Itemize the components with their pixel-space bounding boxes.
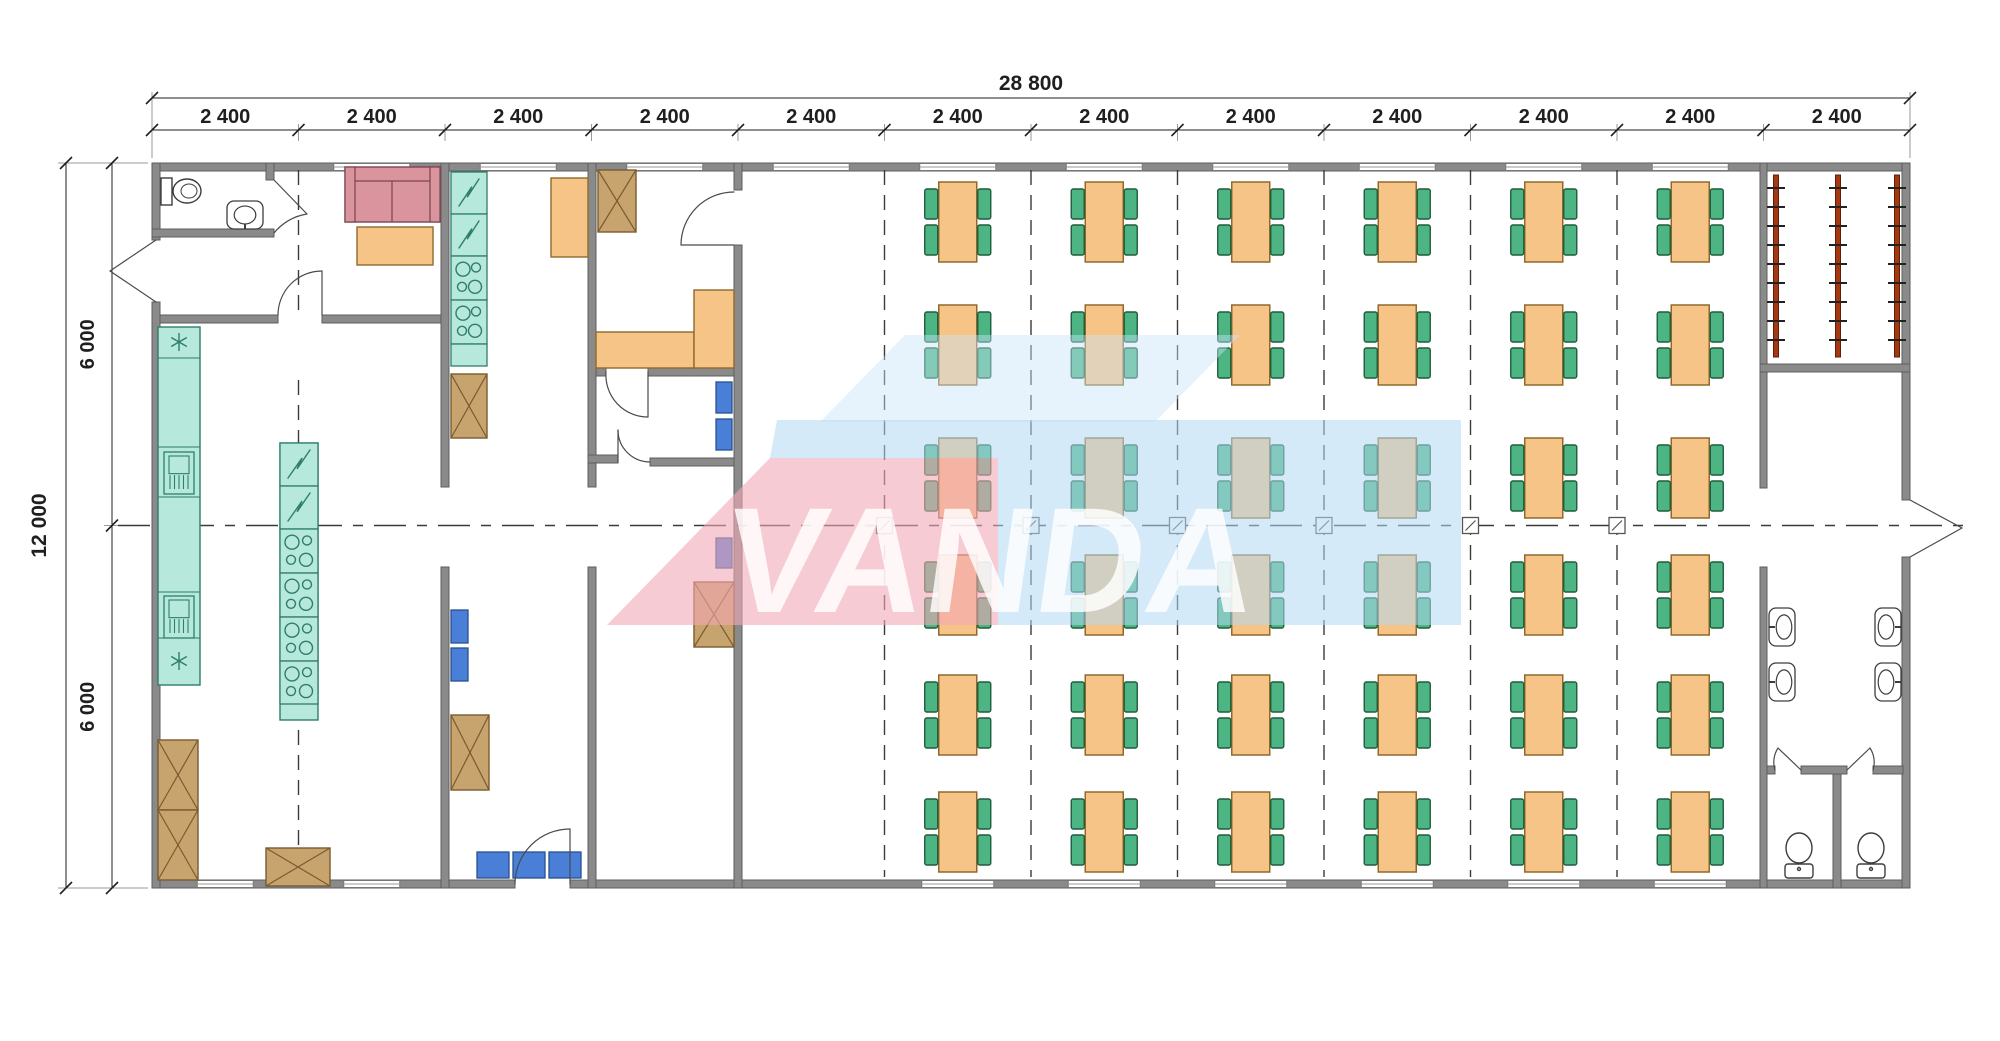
dining-chair: [925, 718, 938, 748]
wall: [1873, 766, 1903, 774]
coat-rack: [1774, 175, 1779, 357]
dining-chair: [1657, 799, 1670, 829]
dining-table-group: [1525, 555, 1563, 635]
dimension-bay-width: 2 400: [786, 106, 836, 128]
dining-table-group: [1671, 675, 1709, 755]
dining-chair: [1364, 312, 1377, 342]
dining-chair: [1364, 682, 1377, 712]
dining-chair: [1218, 225, 1231, 255]
dining-table: [1525, 305, 1563, 385]
dining-chair: [1271, 718, 1284, 748]
blue-chair: [549, 852, 581, 878]
dining-table: [1232, 182, 1270, 262]
wall: [1902, 557, 1910, 888]
dining-chair: [1511, 562, 1524, 592]
dining-table: [1085, 182, 1123, 262]
wall: [441, 567, 449, 888]
dining-chair: [1564, 562, 1577, 592]
dining-table-group: [1378, 182, 1416, 262]
dining-table: [939, 182, 977, 262]
dining-table: [1525, 675, 1563, 755]
wall: [650, 458, 734, 466]
dimension-bay-width: 2 400: [1812, 106, 1862, 128]
dining-chair: [1218, 718, 1231, 748]
dining-chair: [1071, 225, 1084, 255]
dining-chair: [1417, 682, 1430, 712]
dining-chair: [1511, 682, 1524, 712]
dimension-bay-width: 2 400: [1665, 106, 1715, 128]
dimension-bay-width: 2 400: [1079, 106, 1129, 128]
dining-chair: [1511, 598, 1524, 628]
wall: [1833, 774, 1841, 888]
stove-unit: [280, 573, 318, 617]
dining-chair: [1417, 835, 1430, 865]
dimension-bay-width: 2 400: [1372, 106, 1422, 128]
dining-table: [1671, 438, 1709, 518]
dining-chair: [1710, 562, 1723, 592]
dimension-half-height: 6 000: [77, 319, 99, 369]
dining-chair: [1657, 189, 1670, 219]
dining-chair: [1710, 682, 1723, 712]
dining-table-group: [1378, 792, 1416, 872]
dining-chair: [1124, 225, 1137, 255]
sofa-armrest: [430, 167, 440, 222]
dining-table-group: [939, 675, 977, 755]
watermark-text: VANDA: [714, 477, 1270, 644]
dining-table-group: [1671, 305, 1709, 385]
dining-table: [1525, 792, 1563, 872]
dining-table-group: [1525, 675, 1563, 755]
door-swing: [110, 271, 156, 302]
dining-chair: [1657, 445, 1670, 475]
dining-chair: [925, 799, 938, 829]
blue-chair: [451, 648, 468, 681]
floor-plan-drawing: 28 8002 4002 4002 4002 4002 4002 4002 40…: [0, 0, 2000, 1041]
dining-table: [1378, 792, 1416, 872]
dining-chair: [1511, 445, 1524, 475]
dining-table: [1525, 555, 1563, 635]
dining-chair: [978, 189, 991, 219]
stove-unit: [451, 256, 487, 300]
coat-rack: [1895, 175, 1900, 357]
dining-chair: [1564, 348, 1577, 378]
dining-chair: [1417, 799, 1430, 829]
dining-chair: [1271, 348, 1284, 378]
dining-chair: [1564, 598, 1577, 628]
dining-chair: [1417, 312, 1430, 342]
dining-table-group: [1671, 438, 1709, 518]
dining-chair: [1271, 225, 1284, 255]
dining-table: [1378, 675, 1416, 755]
dining-table-group: [1671, 792, 1709, 872]
dining-table: [1232, 305, 1270, 385]
dimension-bay-width: 2 400: [200, 106, 250, 128]
dining-chair: [978, 799, 991, 829]
dining-chair: [1511, 799, 1524, 829]
dining-chair: [1564, 799, 1577, 829]
dining-chair: [1657, 835, 1670, 865]
dining-chair: [1271, 799, 1284, 829]
dining-chair: [925, 835, 938, 865]
dining-chair: [1564, 225, 1577, 255]
dining-table: [1232, 792, 1270, 872]
wall: [596, 368, 606, 376]
dining-chair: [1511, 225, 1524, 255]
dining-chair: [1564, 189, 1577, 219]
dining-chair: [1071, 799, 1084, 829]
wall: [322, 315, 441, 323]
dining-chair: [978, 718, 991, 748]
dining-chair: [1657, 562, 1670, 592]
wall: [160, 315, 278, 323]
dining-table: [1671, 555, 1709, 635]
dining-table-group: [1378, 675, 1416, 755]
dining-chair: [1417, 189, 1430, 219]
dining-table-group: [1232, 305, 1270, 385]
door-swing: [1910, 500, 1962, 528]
dining-chair: [1071, 189, 1084, 219]
dining-chair: [1364, 348, 1377, 378]
dining-table: [1085, 792, 1123, 872]
dining-table-group: [1378, 305, 1416, 385]
dimension-total-width: 28 800: [999, 72, 1063, 95]
dining-chair: [1218, 835, 1231, 865]
dining-chair: [1124, 189, 1137, 219]
dining-table: [1232, 675, 1270, 755]
wall: [1801, 766, 1847, 774]
dining-chair: [1564, 835, 1577, 865]
dining-table-group: [939, 792, 977, 872]
dining-chair: [1124, 799, 1137, 829]
dining-chair: [1271, 835, 1284, 865]
dining-chair: [1364, 718, 1377, 748]
dining-table-group: [1232, 675, 1270, 755]
dining-chair: [1417, 348, 1430, 378]
stove-unit: [280, 529, 318, 573]
wall: [734, 163, 742, 190]
dining-table-group: [1525, 182, 1563, 262]
dining-table: [1085, 675, 1123, 755]
dimension-half-height: 6 000: [77, 682, 99, 732]
blue-chair: [477, 852, 509, 878]
dimension-bay-width: 2 400: [640, 106, 690, 128]
dining-chair: [1657, 718, 1670, 748]
wall: [1760, 364, 1910, 372]
dining-table: [1671, 792, 1709, 872]
dining-table: [1525, 182, 1563, 262]
dining-table-group: [939, 182, 977, 262]
wall: [152, 229, 274, 237]
dining-chair: [1124, 718, 1137, 748]
dining-chair: [1564, 682, 1577, 712]
sofa-armrest: [345, 167, 355, 222]
dining-chair: [1710, 189, 1723, 219]
dining-table: [1525, 438, 1563, 518]
dining-chair: [1511, 835, 1524, 865]
dining-chair: [1271, 189, 1284, 219]
dining-chair: [1710, 445, 1723, 475]
dining-table-group: [1525, 305, 1563, 385]
dining-chair: [1710, 312, 1723, 342]
dining-chair: [1657, 225, 1670, 255]
dining-chair: [1218, 682, 1231, 712]
dining-chair: [1218, 799, 1231, 829]
dining-chair: [1218, 189, 1231, 219]
dining-chair: [1564, 718, 1577, 748]
dining-chair: [1364, 835, 1377, 865]
dimension-bay-width: 2 400: [1226, 106, 1276, 128]
dining-chair: [1364, 225, 1377, 255]
dining-chair: [1710, 225, 1723, 255]
dining-chair: [925, 682, 938, 712]
dining-table: [939, 792, 977, 872]
dining-table: [1378, 182, 1416, 262]
dining-table: [1671, 182, 1709, 262]
dining-chair: [925, 189, 938, 219]
stove-unit: [451, 300, 487, 344]
blue-chair: [716, 382, 732, 413]
dining-table-group: [1525, 438, 1563, 518]
dining-table-group: [1085, 675, 1123, 755]
dining-chair: [1071, 682, 1084, 712]
dimension-bay-width: 2 400: [933, 106, 983, 128]
counter: [451, 344, 487, 366]
dining-chair: [1511, 189, 1524, 219]
dining-chair: [1657, 481, 1670, 511]
dimension-bay-width: 2 400: [347, 106, 397, 128]
dining-table-group: [1525, 792, 1563, 872]
l-counter: [596, 332, 694, 368]
dining-table: [1671, 305, 1709, 385]
coffee-table: [357, 227, 433, 265]
dining-chair: [978, 682, 991, 712]
dining-chair: [1710, 598, 1723, 628]
dining-table: [1378, 305, 1416, 385]
stove-unit: [280, 661, 318, 704]
dining-chair: [1511, 348, 1524, 378]
wall: [588, 455, 618, 463]
toilet-tank: [161, 178, 172, 205]
dining-chair: [1657, 348, 1670, 378]
dining-chair: [1657, 312, 1670, 342]
dining-table-group: [1232, 792, 1270, 872]
dining-chair: [1564, 481, 1577, 511]
wall: [648, 368, 734, 376]
wall: [1902, 163, 1910, 500]
dining-chair: [1511, 718, 1524, 748]
dining-chair: [1071, 835, 1084, 865]
toilet-bowl: [1786, 833, 1812, 863]
dining-table: [939, 675, 977, 755]
dining-chair: [1710, 718, 1723, 748]
dining-table-group: [1671, 182, 1709, 262]
dining-chair: [978, 225, 991, 255]
wall: [588, 163, 596, 487]
stove-unit: [280, 617, 318, 661]
wall: [152, 163, 160, 240]
coat-rack: [1836, 175, 1841, 357]
door-swing: [1910, 528, 1962, 557]
dining-chair: [1564, 312, 1577, 342]
dining-chair: [1124, 835, 1137, 865]
floor-plan-page: 28 8002 4002 4002 4002 4002 4002 4002 40…: [0, 0, 2000, 1041]
top-dimension: 28 8002 4002 4002 4002 4002 4002 4002 40…: [146, 72, 1916, 158]
dining-chair: [1417, 718, 1430, 748]
dining-chair: [1124, 682, 1137, 712]
counter-table: [551, 178, 588, 257]
dining-chair: [1271, 682, 1284, 712]
dining-chair: [1271, 312, 1284, 342]
toilet-bowl: [1858, 833, 1884, 863]
blue-chair: [451, 610, 468, 643]
wall: [1760, 163, 1767, 488]
dining-chair: [1710, 481, 1723, 511]
wall: [266, 163, 274, 180]
door-swing: [110, 240, 156, 271]
dining-chair: [1710, 348, 1723, 378]
dining-chair: [1511, 481, 1524, 511]
dining-table-group: [1085, 182, 1123, 262]
dining-table-group: [1232, 182, 1270, 262]
dining-table-group: [1671, 555, 1709, 635]
wall: [441, 163, 449, 487]
dining-table: [1671, 675, 1709, 755]
wall: [588, 567, 596, 888]
dining-chair: [1364, 189, 1377, 219]
dining-chair: [1657, 598, 1670, 628]
dining-chair: [1511, 312, 1524, 342]
l-counter: [694, 290, 734, 368]
dining-chair: [1364, 799, 1377, 829]
blue-chair: [716, 419, 732, 450]
dining-chair: [925, 225, 938, 255]
dining-chair: [1657, 682, 1670, 712]
dining-table-group: [1085, 792, 1123, 872]
dining-chair: [1071, 718, 1084, 748]
dimension-bay-width: 2 400: [493, 106, 543, 128]
wall: [1760, 567, 1767, 888]
dining-chair: [1710, 835, 1723, 865]
dining-chair: [1417, 225, 1430, 255]
dimension-total-height: 12 000: [28, 493, 51, 557]
dimension-bay-width: 2 400: [1519, 106, 1569, 128]
dining-chair: [1564, 445, 1577, 475]
dining-chair: [978, 835, 991, 865]
dining-chair: [1710, 799, 1723, 829]
